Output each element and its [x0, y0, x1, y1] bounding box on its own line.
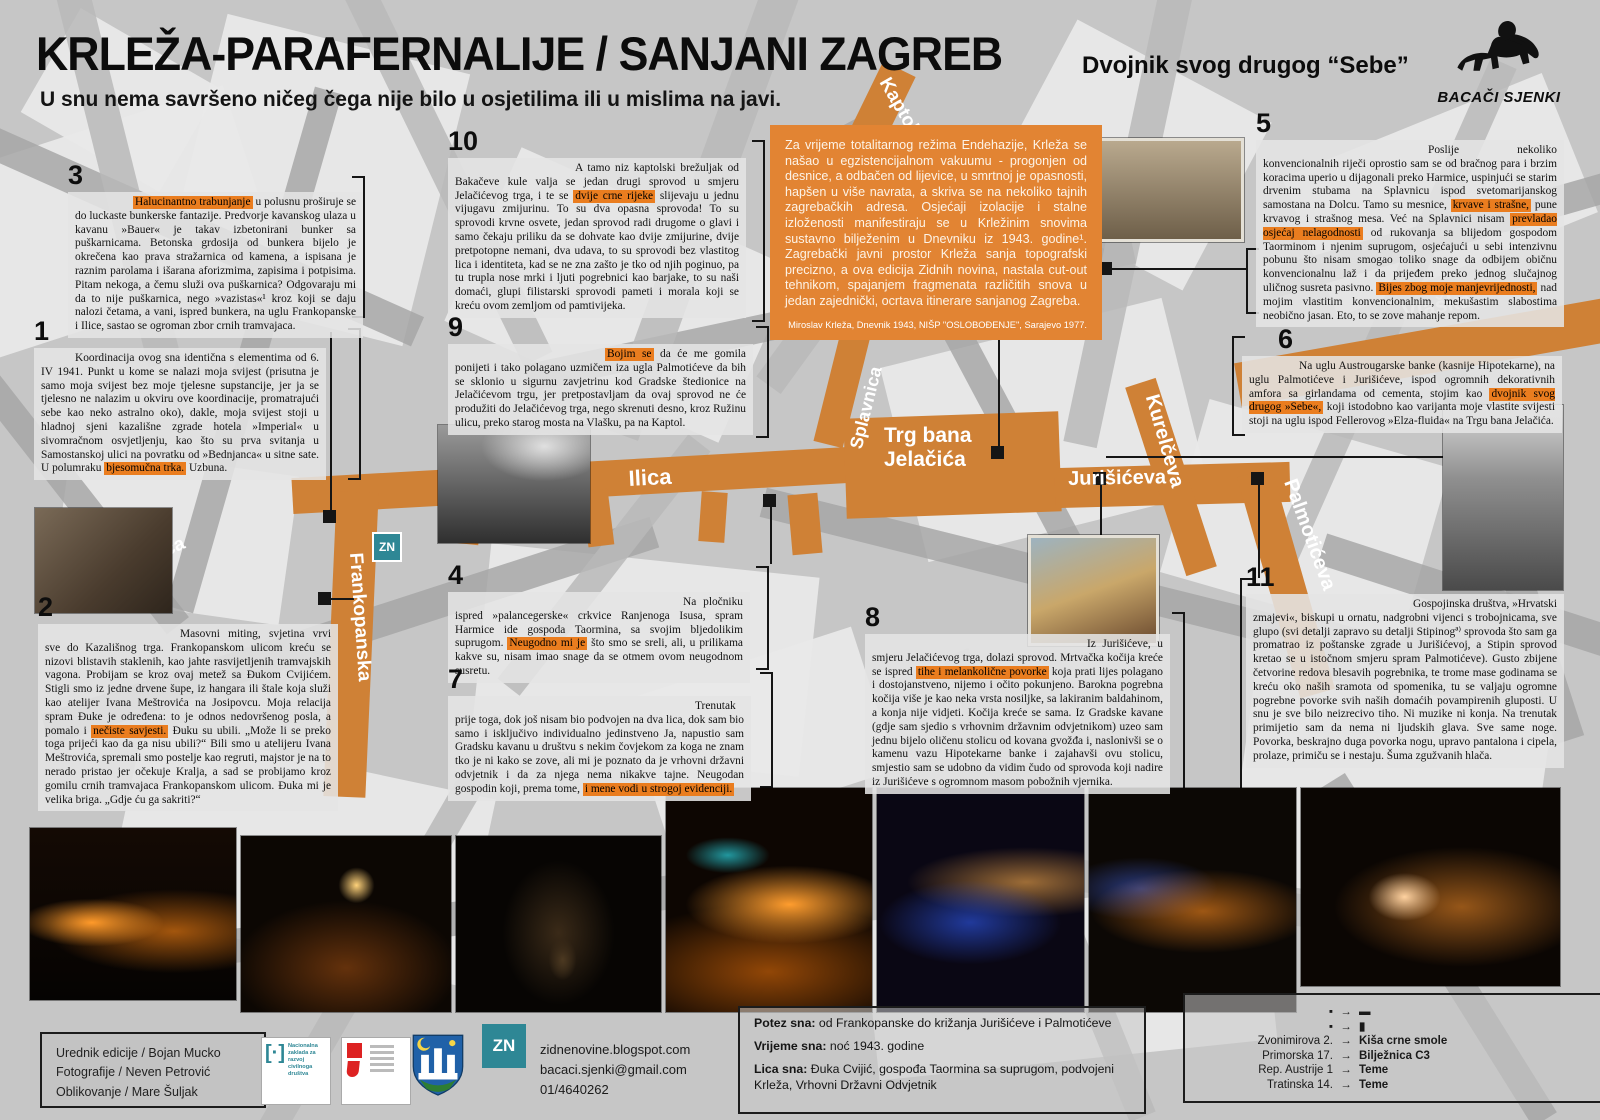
legend-box: ▪→▬▪→▮Zvonimirova 2.→Kiša crne smolePrim…: [1183, 993, 1600, 1103]
block-number: 5: [1256, 110, 1564, 137]
night-photo-church-facade: [456, 836, 661, 1012]
night-photo-blue-tram: [877, 788, 1084, 1012]
ministry-logo-textlines: [370, 1045, 394, 1048]
text-block-2: 2 Masovni miting, svjetina vrvi sve do K…: [38, 594, 338, 811]
horse-rider-icon: [1449, 18, 1549, 82]
intro-footnote: Miroslav Krleža, Dnevnik 1943, NIŠP "OSL…: [785, 320, 1087, 330]
square-label-trg-bana-jelacica: Trg bana Jelačića: [884, 424, 972, 472]
zn-logo: ZN: [482, 1024, 526, 1068]
block-text: Gospojinska društva, »Hrvatski zmajevi«,…: [1246, 594, 1564, 768]
text-block-5: 5 Poslije nekoliko konvencionalnih riječ…: [1256, 110, 1564, 327]
night-photo-street-lamp: [241, 836, 451, 1012]
castle-shield-icon: [412, 1034, 464, 1096]
night-photo-tram-front: [1301, 788, 1560, 986]
bacaci-sjenki-logo-text: BACAČI SJENKI: [1424, 89, 1574, 106]
text-block-9: 9 Bojim se da će me gomila ponijeti i ta…: [448, 314, 753, 435]
block-text: Trenutak prije toga, dok još nisam bio p…: [448, 696, 751, 801]
poster: Ilica Ilica Frankopanska Kaptol Splavnic…: [0, 0, 1600, 1120]
zagreb-coat-of-arms: [412, 1034, 464, 1096]
nacionalna-zaklada-logo-text: Nacionalna zaklada za razvoj civilnoga d…: [288, 1043, 327, 1099]
street-label-ilica: Ilica: [628, 464, 672, 492]
red-comma-icon: [346, 1061, 360, 1077]
block-number: 6: [1278, 326, 1562, 353]
block-number: 2: [38, 594, 338, 621]
nacionalna-zaklada-logo: [·] Nacionalna zaklada za razvoj civilno…: [262, 1038, 330, 1104]
contact-info: zidnenovine.blogspot.combacaci.sjenki@gm…: [540, 1040, 690, 1100]
poster-tagline: U snu nema savršeno ničeg čega nije bilo…: [40, 88, 781, 112]
block-number: 1: [34, 318, 326, 345]
red-square-icon: [347, 1043, 362, 1058]
archive-photo-jelacic-square: [438, 425, 590, 543]
intro-text: Za vrijeme totalitarnog režima Endehazij…: [785, 138, 1087, 310]
block-text: Masovni miting, svjetina vrvi sve do Kaz…: [38, 624, 338, 811]
night-photo-neon-street: [666, 788, 872, 1012]
text-block-11: 11 Gospojinska društva, »Hrvatski zmajev…: [1246, 564, 1564, 768]
text-block-10: 10 A tamo niz kaptolski brežuljak od Bak…: [448, 128, 746, 318]
block-text: Koordinacija ovog sna identična s elemen…: [34, 348, 326, 480]
block-number: 4: [448, 562, 750, 589]
text-block-4: 4 Na pločniku ispred »palancegerske« crk…: [448, 562, 750, 683]
intro-box: Za vrijeme totalitarnog režima Endehazij…: [770, 125, 1102, 340]
credits-box: Urednik edicije / Bojan MuckoFotografije…: [40, 1032, 266, 1108]
bacaci-sjenki-logo: BACAČI SJENKI: [1424, 18, 1574, 106]
block-text: Poslije nekoliko konvencionalnih riječi …: [1256, 140, 1564, 327]
postcard-photo-harmica: [1098, 138, 1244, 242]
zn-map-marker: ZN: [372, 532, 402, 562]
bracket-icon: [·]: [265, 1043, 285, 1099]
poster-subtitle-right: Dvojnik svog drugog “Sebe”: [1082, 52, 1409, 80]
text-block-1: 1 Koordinacija ovog sna identična s elem…: [34, 318, 326, 480]
night-photo-tram-lights-1: [30, 828, 236, 1000]
block-text: Iz Jurišićeve, u smjeru Jelačićevog trga…: [865, 634, 1170, 794]
dream-box: Potez sna: od Frankopanske do križanja J…: [738, 1006, 1146, 1114]
legend-rows: ▪→▬▪→▮Zvonimirova 2.→Kiša crne smolePrim…: [1225, 1005, 1600, 1092]
text-block-7: 7 Trenutak prije toga, dok još nisam bio…: [448, 666, 751, 801]
text-block-6: 6 Na uglu Austrougarske banke (kasnije H…: [1242, 326, 1562, 433]
text-block-3: 3 Halucinantno trabunjanje u polusnu pro…: [68, 162, 363, 338]
street-label-jurisiceva: Jurišićeva: [1068, 466, 1166, 491]
block-text: Na uglu Austrougarske banke (kasnije Hip…: [1242, 356, 1562, 433]
block-number: 3: [68, 162, 363, 189]
ministry-logo: [342, 1038, 410, 1104]
block-text: Halucinantno trabunjanje u polusnu proši…: [68, 192, 363, 338]
text-block-8: 8 Iz Jurišićeve, u smjeru Jelačićevog tr…: [865, 604, 1170, 794]
night-photo-tram-blur: [1089, 788, 1296, 1012]
poster-title: KRLEŽA-PARAFERNALIJE / SANJANI ZAGREB: [36, 26, 1002, 81]
block-text: A tamo niz kaptolski brežuljak od Bakače…: [448, 158, 746, 318]
block-number: 11: [1246, 564, 1564, 591]
block-number: 7: [448, 666, 751, 693]
block-number: 8: [865, 604, 1170, 631]
block-number: 9: [448, 314, 753, 341]
block-number: 10: [448, 128, 746, 155]
block-text: Bojim se da će me gomila ponijeti i tako…: [448, 344, 753, 435]
